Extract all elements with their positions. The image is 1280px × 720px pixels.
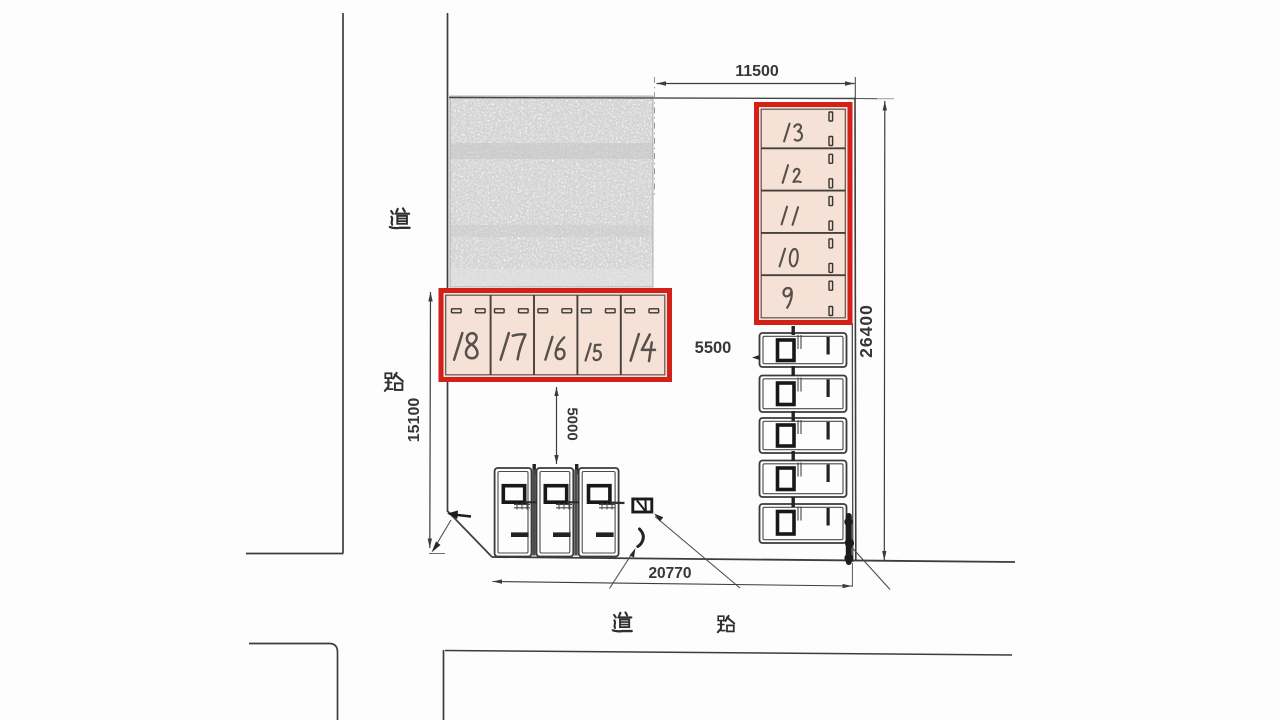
svg-text:11500: 11500: [735, 63, 779, 80]
svg-text:26400: 26400: [856, 304, 876, 358]
svg-text:20770: 20770: [648, 565, 691, 582]
svg-text:15100: 15100: [406, 398, 423, 443]
svg-text:5500: 5500: [695, 339, 732, 357]
svg-text:5000: 5000: [564, 407, 581, 440]
